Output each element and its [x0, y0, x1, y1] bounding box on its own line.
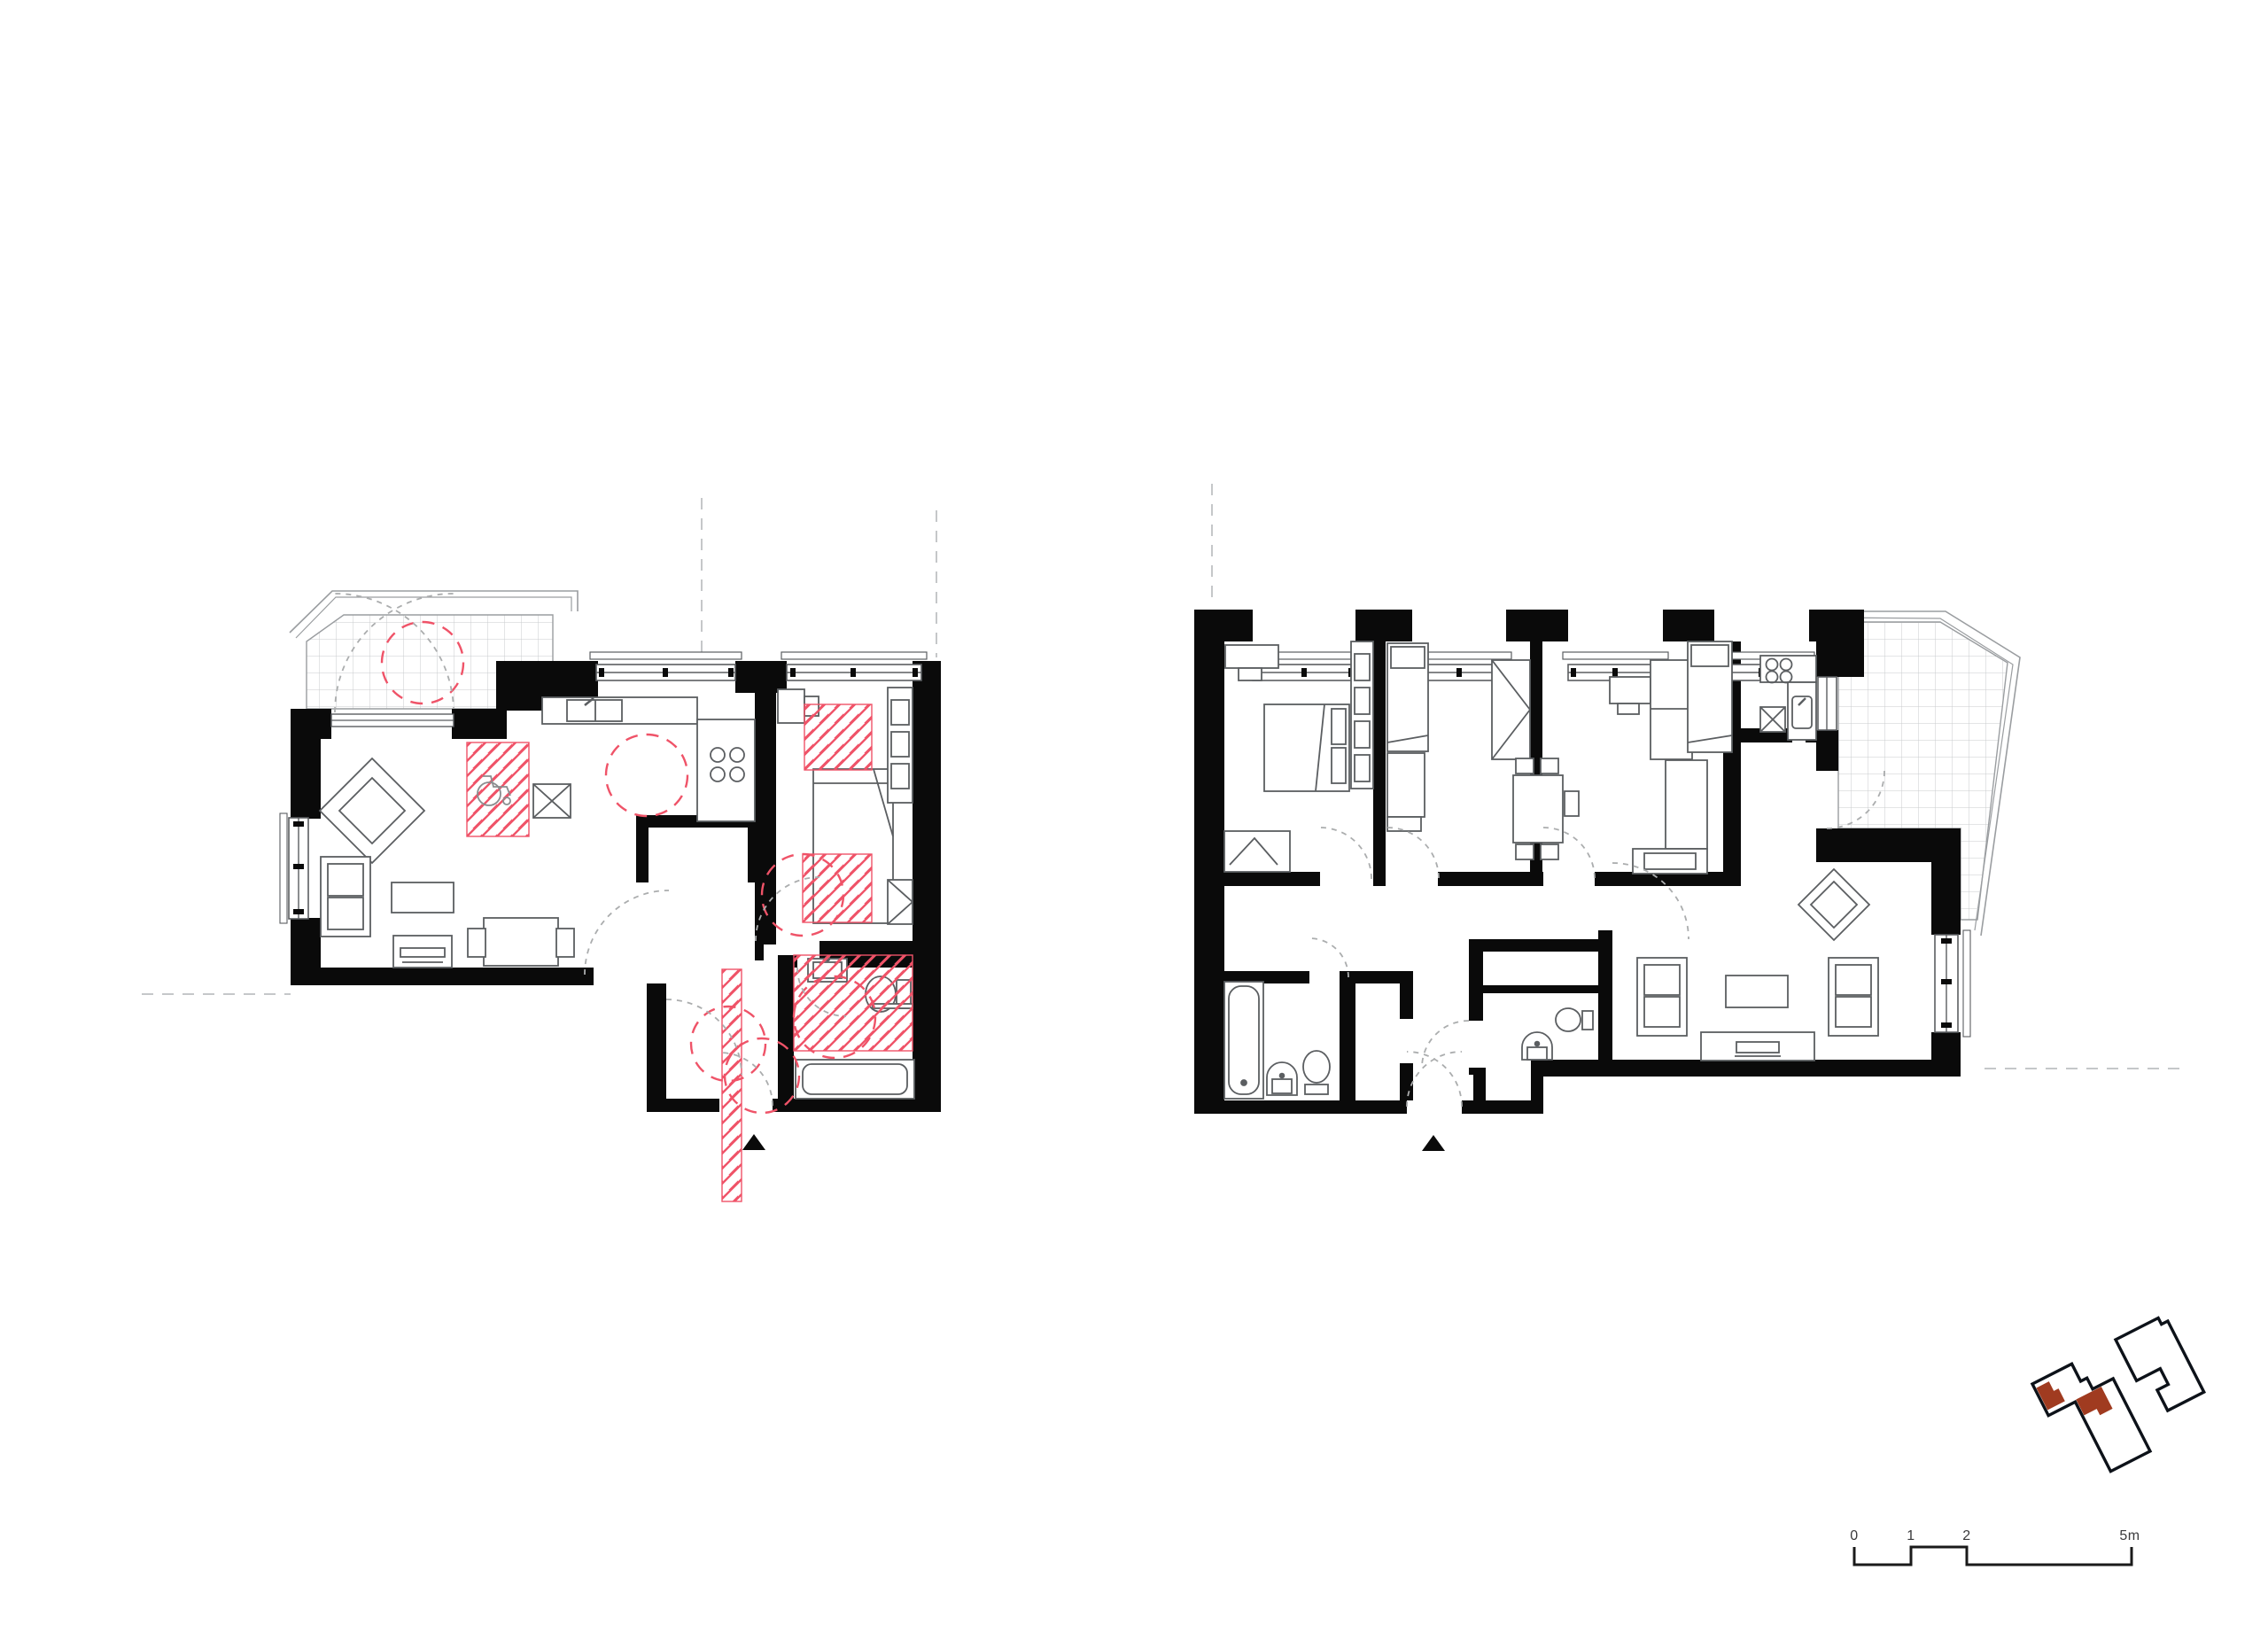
toilet — [1303, 1051, 1330, 1083]
bedroom-3-furniture — [1610, 641, 1732, 874]
right-apartment-plan — [1194, 610, 2020, 1151]
chair — [1516, 758, 1534, 773]
accessibility-zone — [794, 955, 913, 1051]
chair — [1565, 791, 1579, 816]
desk — [778, 689, 804, 723]
entrance-arrow-icon — [742, 1134, 765, 1150]
toilet — [1556, 1008, 1581, 1031]
dining-table — [484, 918, 558, 966]
scale-label-0: 0 — [1850, 1528, 1858, 1543]
kitchen — [1760, 656, 1816, 740]
wc-fixtures — [1522, 1008, 1593, 1060]
chair — [1618, 704, 1639, 714]
living-room-furniture — [1637, 869, 1878, 1061]
pillow — [1391, 647, 1425, 668]
dresser — [1666, 760, 1707, 849]
dining-table — [1513, 775, 1563, 843]
floor-plan-sheet: 0 1 2 5m — [0, 0, 2268, 1648]
scale-bar-rule — [1854, 1547, 2132, 1565]
floor-plan-drawing: 0 1 2 5m — [0, 0, 2268, 1648]
site-key-plan — [2032, 1315, 2204, 1485]
entrance-arrow-icon — [1422, 1135, 1445, 1151]
accessibility-zone — [467, 742, 529, 836]
bench — [1224, 831, 1290, 872]
chair — [468, 929, 485, 957]
shelf — [1387, 817, 1421, 831]
coffee-table — [1726, 976, 1788, 1007]
toilet-tank — [1305, 1084, 1328, 1094]
chair — [1239, 668, 1262, 680]
pillow — [1691, 645, 1728, 666]
kitchen-sink — [567, 700, 622, 721]
accessibility-zone — [803, 854, 872, 922]
kitchen — [533, 697, 755, 821]
building-outline — [2116, 1315, 2204, 1417]
dining-furniture — [1513, 758, 1579, 859]
bathroom-fixtures — [1224, 982, 1330, 1099]
coffee-table — [392, 882, 454, 913]
wardrobe — [888, 880, 913, 924]
dresser — [1387, 753, 1425, 817]
toilet-tank — [1582, 1011, 1593, 1030]
scale-label-5m: 5m — [2119, 1528, 2140, 1543]
tv — [400, 948, 445, 957]
tv — [1736, 1042, 1779, 1053]
scale-label-2: 2 — [1962, 1528, 1970, 1543]
chair — [1541, 758, 1558, 773]
desk — [1225, 645, 1278, 668]
scale-label-1: 1 — [1907, 1528, 1915, 1543]
pillow — [1332, 709, 1346, 744]
turning-circle — [606, 735, 687, 816]
wardrobe — [1492, 660, 1530, 759]
wardrobe — [1651, 660, 1692, 759]
chair — [1516, 844, 1534, 859]
chair — [556, 929, 574, 957]
chair — [1541, 844, 1558, 859]
left-apartment-plan — [280, 591, 941, 1201]
pillow — [1332, 748, 1346, 783]
accessibility-zone — [804, 704, 872, 770]
desk — [1610, 677, 1651, 704]
kitchen-counter — [697, 719, 755, 821]
scale-bar: 0 1 2 5m — [1850, 1528, 2140, 1565]
